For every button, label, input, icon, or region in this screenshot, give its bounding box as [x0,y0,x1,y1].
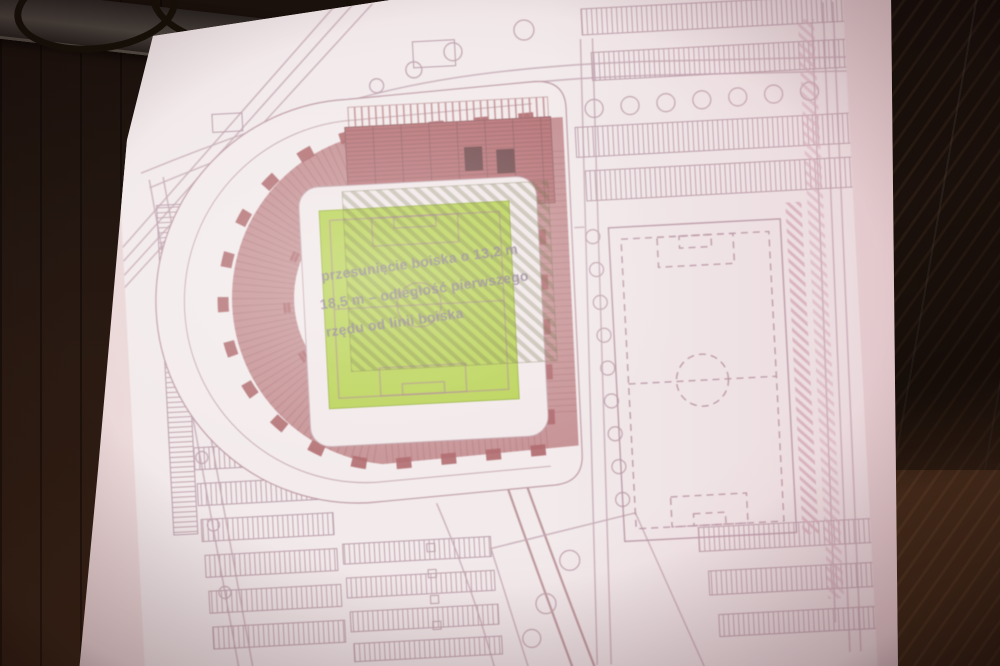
stadium-site-plan-drawing: przesunięcie boiska o 13,2 m 18,5 m – od… [110,0,878,666]
roof-structure [496,149,515,174]
roof-structure [464,146,483,171]
presentation-photo: przesunięcie boiska o 13,2 m 18,5 m – od… [0,0,1000,666]
wood-panel-right [884,0,1000,666]
practice-field [598,19,844,610]
wood-panel-right-upper [884,0,1000,470]
projector-screen: przesunięcie boiska o 13,2 m 18,5 m – od… [0,0,1000,666]
